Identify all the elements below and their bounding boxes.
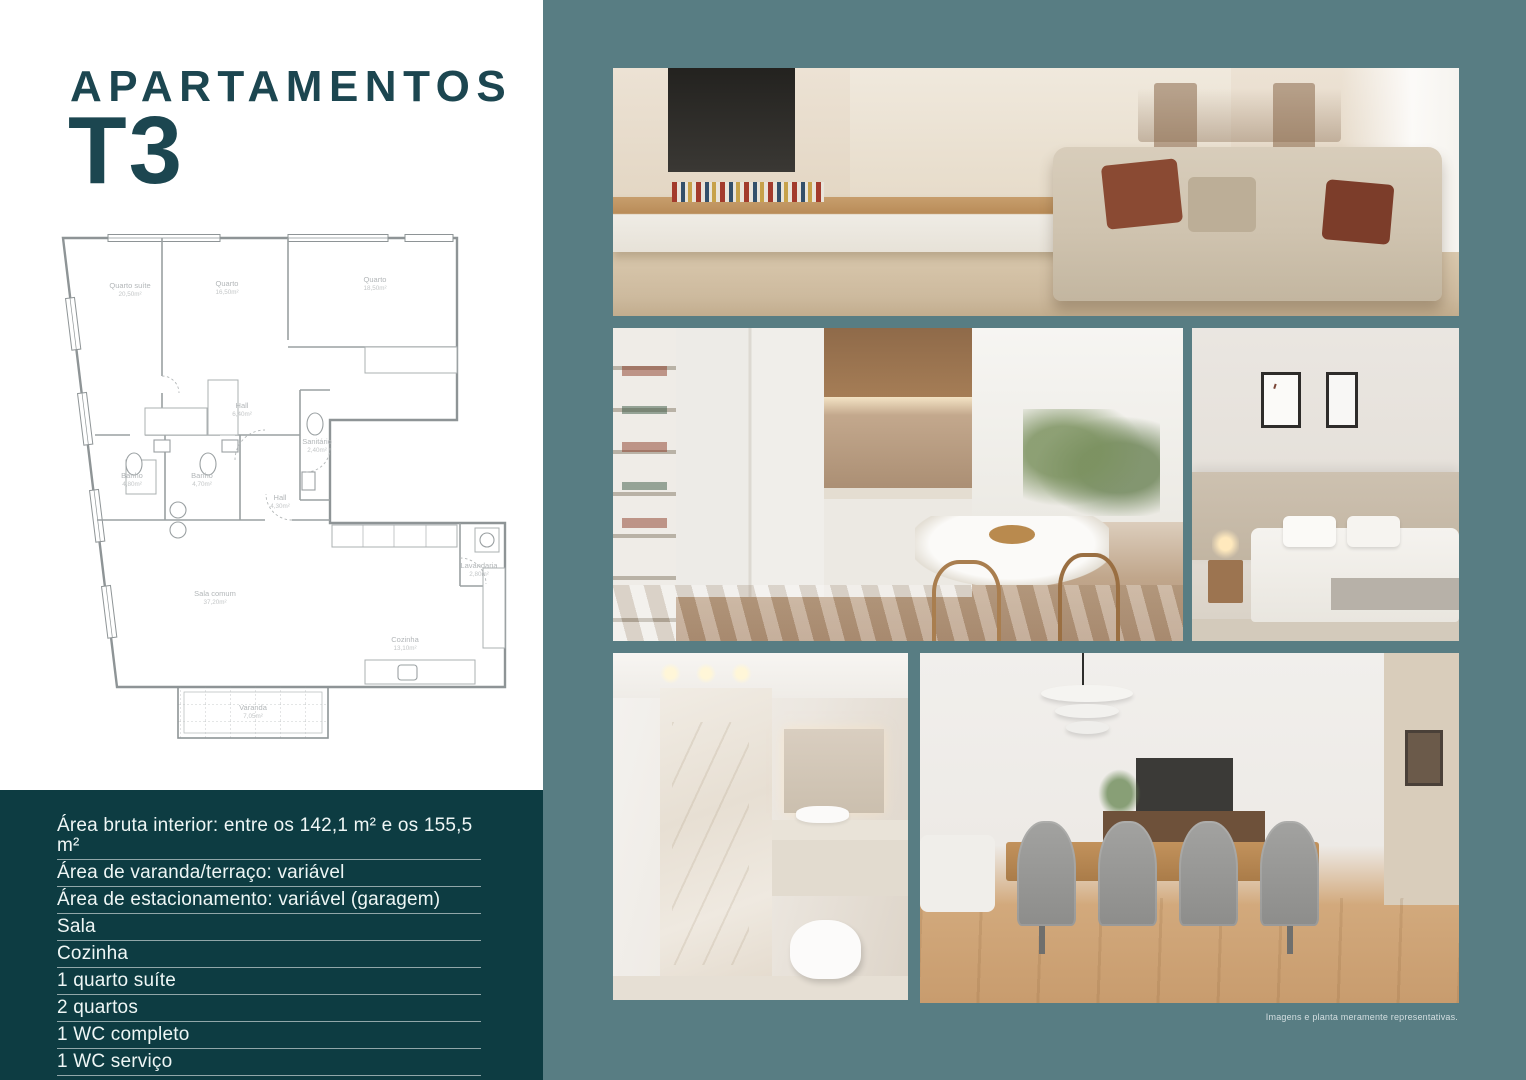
spec-item: Cozinha (57, 944, 481, 968)
book-row (672, 182, 824, 202)
pendant-disc (1055, 704, 1120, 719)
left-column: APARTAMENTOS T3 (0, 0, 543, 1080)
spec-item: 1 WC completo (57, 1025, 481, 1049)
room-label-banho-1: Banho4,80m² (121, 471, 143, 489)
wall-art-frame (1261, 372, 1301, 428)
wishbone-chair (932, 560, 1000, 641)
spec-item: Área bruta interior: entre os 142,1 m² e… (57, 816, 481, 860)
sofa-glimpse (920, 835, 995, 912)
background-chair (1273, 83, 1315, 147)
photo-living-room (613, 68, 1459, 316)
spec-list: Área bruta interior: entre os 142,1 m² e… (57, 816, 481, 1079)
spec-item: Área de varanda/terraço: variável (57, 863, 481, 887)
room-label-quarto-3: Quarto18,50m² (363, 275, 386, 293)
rust-cushion (1101, 158, 1183, 230)
ceiling-spotlight (731, 663, 752, 684)
pendant-disc (1041, 685, 1133, 703)
bookshelf-books (622, 366, 668, 554)
marble-backsplash (824, 397, 972, 488)
brochure-page: APARTAMENTOS T3 (0, 0, 1526, 1080)
photo-dining-room (920, 653, 1459, 1003)
room-label-quarto-2: Quarto16,50m² (215, 279, 238, 297)
bedroom-floor (1192, 619, 1459, 641)
floor-plan-drawing (30, 228, 535, 743)
nightstand (1208, 560, 1243, 604)
beige-cushion (1188, 177, 1256, 232)
vanity-cabinet (772, 840, 908, 896)
art-squiggle (1273, 383, 1278, 388)
upper-wood-cabinets (824, 328, 972, 397)
bathroom-floor (613, 976, 908, 1000)
room-label-quarto-suite: Quarto suíte20,50m² (109, 281, 150, 299)
pillow (1347, 516, 1400, 547)
spec-item: Área de estacionamento: variável (garage… (57, 890, 481, 914)
spec-item: Sala (57, 917, 481, 941)
tv-fireplace-unit (1136, 758, 1233, 811)
room-label-hall: Hall6,40m² (232, 401, 252, 419)
upholstered-chair (1179, 821, 1238, 926)
bidet (790, 920, 861, 979)
disclaimer-caption: Imagens e planta meramente representativ… (1266, 1012, 1458, 1022)
ceiling-spotlight (696, 663, 717, 684)
pendant-disc (1066, 721, 1109, 734)
upholstered-chair (1098, 821, 1157, 926)
bed-throw (1331, 578, 1459, 609)
spec-block: Área bruta interior: entre os 142,1 m² e… (0, 790, 543, 1080)
room-label-sanitario: Sanitário2,40m² (302, 437, 332, 455)
sphere-lamp (1212, 528, 1239, 559)
terrace-plants (1023, 409, 1160, 515)
framed-art (1405, 730, 1443, 786)
vanity-mirror (784, 729, 884, 812)
media-console (613, 197, 1087, 252)
pendant-stem (1082, 653, 1084, 688)
rust-cushion (1321, 179, 1394, 244)
ceiling-spotlight (660, 663, 681, 684)
tall-cabinets (676, 328, 824, 597)
upholstered-chair (1260, 821, 1319, 926)
spec-item: 2 quartos (57, 998, 481, 1022)
washbasin (796, 806, 849, 823)
room-label-lavandaria: Lavandaria2,80m² (460, 561, 497, 579)
wall-art-frame (1326, 372, 1358, 428)
background-chair (1154, 83, 1196, 147)
spec-item: 1 quarto suíte (57, 971, 481, 995)
vanity-counter (772, 820, 908, 841)
upholstered-chair (1017, 821, 1076, 926)
tv-screen (668, 68, 795, 172)
marble-veins (672, 722, 749, 965)
room-label-varanda: Varanda7,05m² (239, 703, 267, 721)
gallery-panel: Imagens e planta meramente representativ… (543, 0, 1526, 1080)
room-label-banho-2: Banho4,70m² (191, 471, 213, 489)
room-label-hall-2: Hall4,30m² (270, 493, 290, 511)
photo-kitchen (613, 328, 1183, 641)
pillow (1283, 516, 1336, 547)
photo-bathroom (613, 653, 908, 1000)
photo-bedroom (1192, 328, 1459, 641)
room-label-cozinha: Cozinha13,10m² (391, 635, 419, 653)
room-label-sala-comum: Sala comum37,20m² (194, 589, 236, 607)
floor-plan: Quarto suíte20,50m² Quarto16,50m² Quarto… (30, 228, 535, 743)
spec-item: 1 WC serviço (57, 1052, 481, 1076)
page-subtitle-typology: T3 (68, 96, 184, 206)
wishbone-chair (1058, 553, 1121, 641)
bread-board (989, 525, 1035, 544)
